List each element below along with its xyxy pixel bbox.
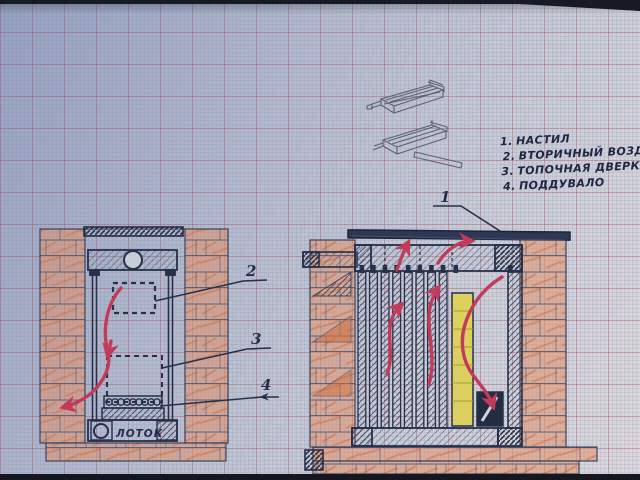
photographed-sketch: ЛОТОК 2 3 4 1 xyxy=(0,0,640,480)
left-section-drawing: ЛОТОК xyxy=(40,227,228,461)
deck-plate-top xyxy=(348,230,570,240)
right-drawing-right-brick-column xyxy=(520,232,566,447)
legend-num-2: 2. xyxy=(502,149,519,165)
legend-label-4: ПОДДУВАЛО xyxy=(519,176,605,193)
legend-num-4: 4. xyxy=(503,179,520,195)
photo-edge-bottom xyxy=(0,474,640,480)
tray-label: ЛОТОК xyxy=(115,428,163,440)
right-foundation-course-1 xyxy=(313,447,597,461)
left-ledge-top-end xyxy=(303,252,319,267)
right-inner-wall xyxy=(508,272,522,428)
left-drawing-left-brick-wall xyxy=(40,229,85,443)
legend-num-3: 3. xyxy=(501,164,518,180)
callout-4: 4 xyxy=(261,376,271,394)
legend: 1.НАСТИЛ 2.ВТОРИЧНЫЙ ВОЗДУХ 3.ТОПОЧНАЯ Д… xyxy=(500,128,640,194)
leader-1 xyxy=(433,206,500,231)
callout-3: 3 xyxy=(251,330,261,348)
right-section-drawing xyxy=(303,230,597,474)
legend-label-1: НАСТИЛ xyxy=(516,132,571,147)
grate-tray-sketches xyxy=(367,80,462,168)
right-foundation-course-2 xyxy=(313,461,579,474)
grate-tray-sketch-bottom xyxy=(373,120,462,168)
flue-pipe-circle xyxy=(124,251,142,269)
rail-nub-left xyxy=(90,270,99,275)
right-drawing-left-brick-column xyxy=(310,240,355,447)
legend-num-1: 1. xyxy=(500,134,517,150)
left-drawing-foundation xyxy=(46,443,226,461)
ash-pit-hatched-bar xyxy=(102,408,164,420)
callout-1: 1 xyxy=(440,188,450,206)
left-ledge-bottom-block xyxy=(305,450,323,470)
tray-roller-circle xyxy=(94,424,108,438)
deck-plate-section xyxy=(84,227,183,236)
bottom-beam-right-block xyxy=(498,428,522,446)
firebox-door-dashed-box xyxy=(107,356,162,402)
grate-tray-sketch-top xyxy=(367,80,444,113)
rail-nub-right xyxy=(166,270,175,275)
stove-diagram: ЛОТОК 2 3 4 1 xyxy=(0,0,640,480)
left-drawing-right-brick-wall xyxy=(185,229,228,443)
bottom-beam-left-block xyxy=(352,428,372,446)
callout-2: 2 xyxy=(245,262,256,280)
right-stove-bottom-beam xyxy=(352,428,498,446)
